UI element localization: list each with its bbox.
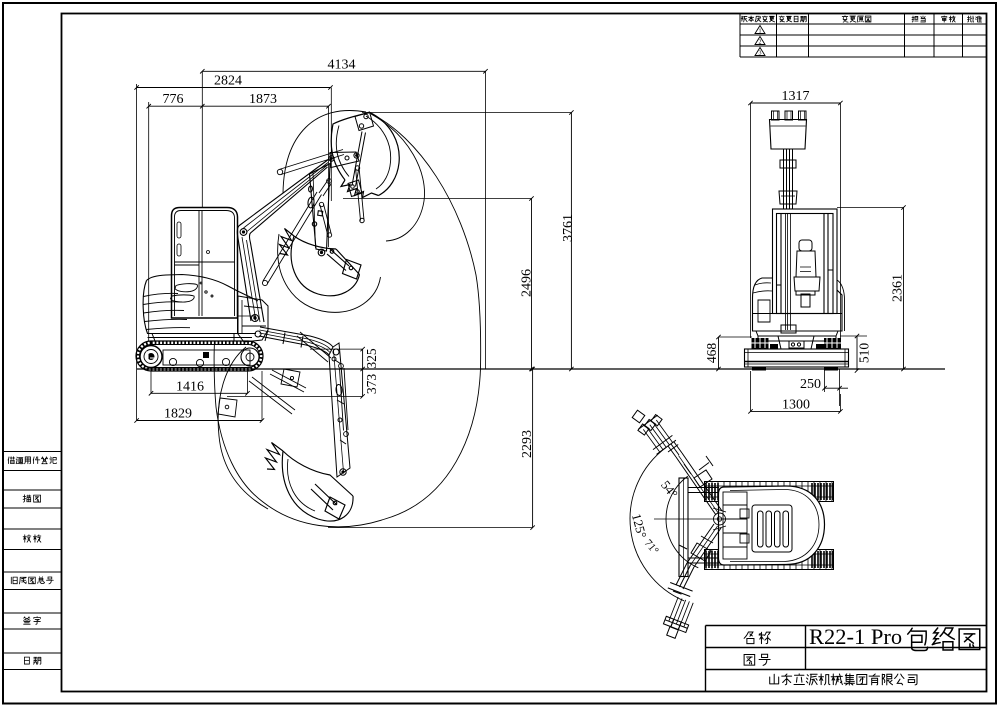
svg-text:1: 1 [759,29,762,35]
svg-text:2496: 2496 [520,269,535,297]
svg-text:510: 510 [857,343,872,364]
svg-text:2293: 2293 [520,430,535,458]
svg-text:1416: 1416 [176,380,204,395]
svg-text:1300: 1300 [782,398,810,413]
svg-text:3761: 3761 [561,214,576,242]
svg-text:2: 2 [759,40,762,46]
svg-text:776: 776 [163,92,184,107]
svg-text:1317: 1317 [782,89,810,104]
svg-text:468: 468 [704,343,719,364]
svg-text:R22-1 Pro: R22-1 Pro [809,624,902,649]
svg-text:1829: 1829 [164,407,192,422]
svg-text:250: 250 [800,377,821,392]
svg-text:325: 325 [364,348,379,369]
svg-text:2824: 2824 [214,74,242,89]
svg-text:2361: 2361 [891,274,906,302]
svg-text:373: 373 [364,374,379,395]
svg-text:4134: 4134 [328,58,356,73]
svg-text:3: 3 [759,51,762,57]
svg-text:1873: 1873 [249,92,277,107]
